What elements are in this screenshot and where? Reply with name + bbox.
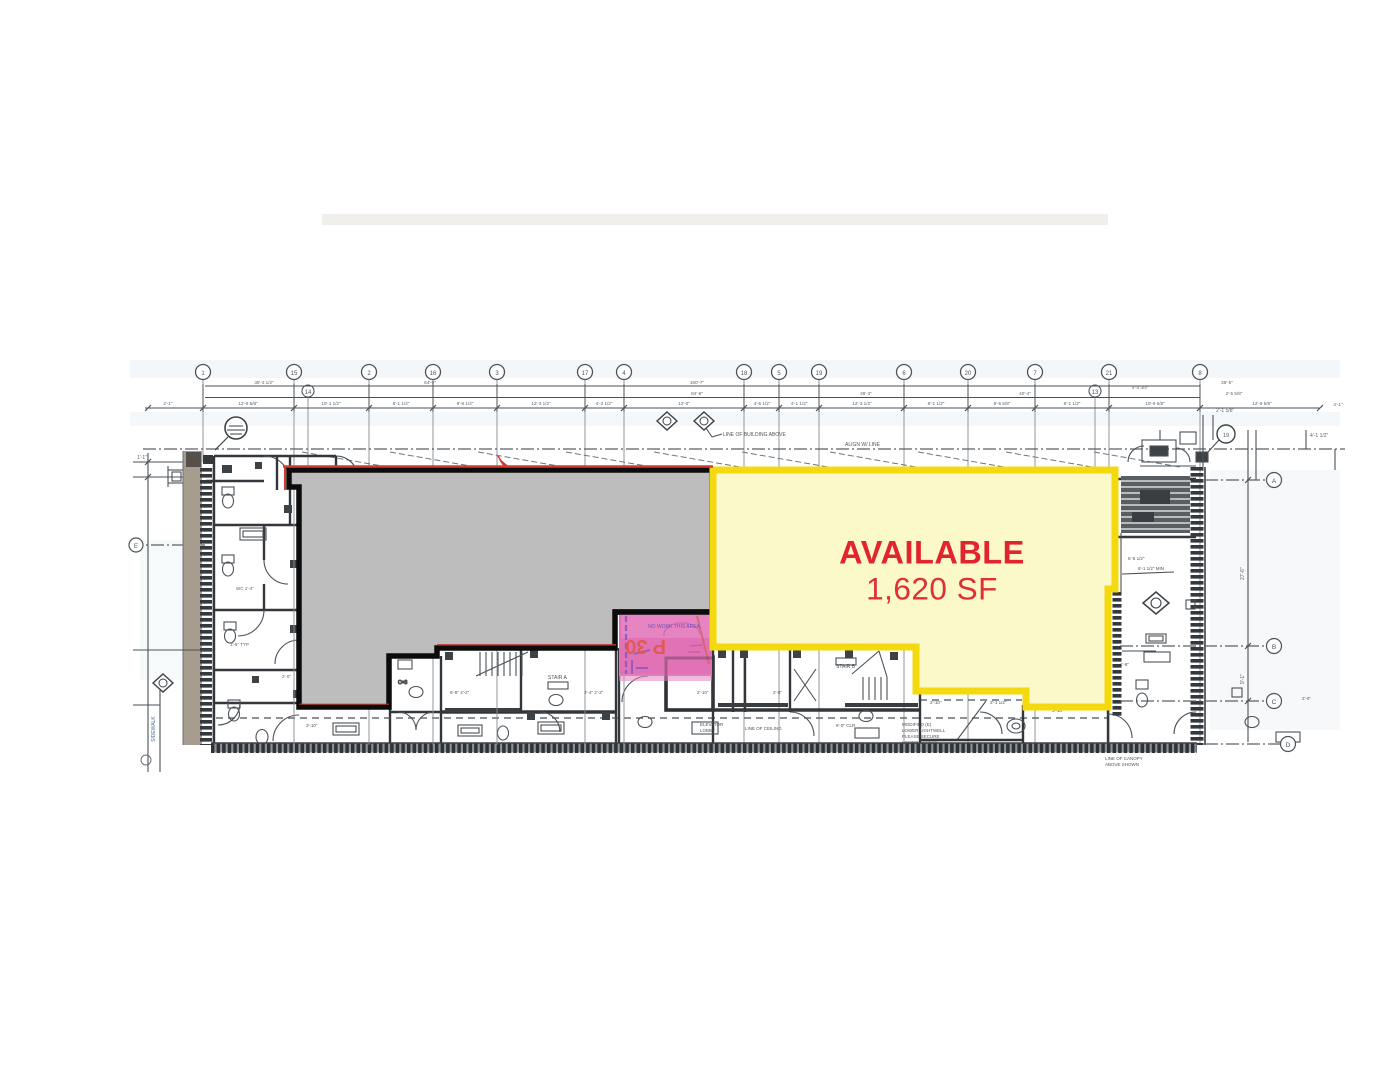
- svg-text:9'-1": 9'-1": [1240, 674, 1246, 684]
- svg-text:B: B: [1272, 644, 1276, 651]
- svg-text:ALIGN W/ LINE: ALIGN W/ LINE: [845, 442, 881, 448]
- svg-text:C=3: C=3: [398, 680, 408, 686]
- svg-text:4'-4 3/4": 4'-4 3/4": [1132, 385, 1149, 390]
- svg-text:5'-5 1/2": 5'-5 1/2": [1128, 556, 1145, 561]
- svg-text:84'-9": 84'-9": [691, 391, 703, 396]
- svg-text:ABOVE SHOWN: ABOVE SHOWN: [1105, 762, 1139, 767]
- svg-text:15: 15: [291, 371, 298, 377]
- svg-text:18: 18: [741, 371, 748, 377]
- svg-text:1'-1": 1'-1": [137, 455, 147, 461]
- svg-text:2'-0": 2'-0": [1302, 696, 1311, 701]
- svg-text:8'-1 1/2": 8'-1 1/2": [393, 401, 410, 406]
- svg-text:20: 20: [965, 371, 972, 377]
- svg-text:4'-1 1/2": 4'-1 1/2": [791, 401, 808, 406]
- svg-text:WC 1'-4": WC 1'-4": [236, 586, 254, 591]
- svg-text:40'-4": 40'-4": [1019, 391, 1031, 396]
- svg-text:NO WORK THIS AREA: NO WORK THIS AREA: [648, 624, 701, 630]
- svg-text:LINE OF CEILING: LINE OF CEILING: [745, 726, 782, 731]
- svg-text:4'-5 1/2": 4'-5 1/2": [754, 401, 771, 406]
- svg-text:27'-6": 27'-6": [1240, 567, 1246, 580]
- svg-text:4'-1 1/2": 4'-1 1/2": [1310, 433, 1329, 439]
- svg-text:17: 17: [582, 371, 589, 377]
- svg-text:AVAILABLE: AVAILABLE: [839, 535, 1025, 571]
- svg-text:12'-3 1/2": 12'-3 1/2": [852, 401, 872, 406]
- svg-text:36'-5": 36'-5": [1221, 380, 1233, 385]
- svg-text:160'-7": 160'-7": [690, 380, 705, 385]
- svg-text:12'-9 5/8": 12'-9 5/8": [1252, 401, 1272, 406]
- svg-text:2'-1": 2'-1": [163, 401, 173, 406]
- svg-text:3'-10": 3'-10": [306, 723, 318, 728]
- svg-text:12'-0": 12'-0": [678, 401, 690, 406]
- svg-text:2'-10": 2'-10": [697, 690, 709, 695]
- svg-text:10'-1 1/2": 10'-1 1/2": [321, 401, 341, 406]
- svg-text:LINE OF BUILDING ABOVE: LINE OF BUILDING ABOVE: [723, 432, 786, 438]
- svg-text:E: E: [134, 544, 138, 550]
- svg-text:ELEVATOR: ELEVATOR: [700, 722, 724, 727]
- svg-text:1'-6" TYP: 1'-6" TYP: [230, 642, 249, 647]
- svg-text:14: 14: [305, 390, 312, 396]
- svg-text:36'-3": 36'-3": [860, 391, 872, 396]
- svg-text:10'-9 5/8": 10'-9 5/8": [1145, 401, 1165, 406]
- svg-text:9'-5 5/8": 9'-5 5/8": [994, 401, 1011, 406]
- svg-text:3'-4" 2'-2": 3'-4" 2'-2": [584, 690, 604, 695]
- svg-text:2'-1 5/8": 2'-1 5/8": [1216, 408, 1235, 414]
- svg-text:STAIR A: STAIR A: [548, 675, 567, 681]
- svg-text:2'-10": 2'-10": [930, 700, 942, 705]
- svg-text:PLEASE SECURE: PLEASE SECURE: [902, 734, 940, 739]
- svg-text:4'-3 1/2": 4'-3 1/2": [596, 401, 613, 406]
- svg-text:D: D: [1286, 742, 1291, 749]
- svg-text:P 30: P 30: [625, 635, 666, 657]
- svg-text:6'-0" CLR: 6'-0" CLR: [836, 723, 856, 728]
- svg-text:19: 19: [816, 371, 823, 377]
- svg-text:6'-1 1/2" MIN: 6'-1 1/2" MIN: [1138, 566, 1164, 571]
- svg-text:SIDEWALK: SIDEWALK: [151, 716, 157, 742]
- svg-text:64'-9": 64'-9": [424, 380, 436, 385]
- svg-text:8'-1 1/2": 8'-1 1/2": [1064, 401, 1081, 406]
- svg-text:2'-5 5/8": 2'-5 5/8": [1226, 391, 1243, 396]
- svg-text:16: 16: [430, 371, 437, 377]
- svg-text:LOWER LIGHTWELL: LOWER LIGHTWELL: [902, 728, 946, 733]
- svg-text:1,620 SF: 1,620 SF: [866, 571, 998, 607]
- svg-text:35'-3 1/2": 35'-3 1/2": [254, 380, 274, 385]
- svg-text:19: 19: [1223, 433, 1229, 439]
- svg-text:4'-1": 4'-1": [1333, 402, 1343, 407]
- svg-text:C: C: [1272, 699, 1277, 706]
- svg-text:2'-0": 2'-0": [282, 674, 291, 679]
- svg-text:MODIFIED (E): MODIFIED (E): [902, 722, 932, 727]
- svg-text:12'-9 5/8": 12'-9 5/8": [238, 401, 258, 406]
- svg-text:3'-1 1/2": 3'-1 1/2": [990, 700, 1007, 705]
- svg-text:9'-8 1/2": 9'-8 1/2": [457, 401, 474, 406]
- svg-text:12'-3 1/2": 12'-3 1/2": [531, 401, 551, 406]
- svg-text:21: 21: [1106, 371, 1113, 377]
- svg-text:LINE OF CANOPY: LINE OF CANOPY: [1105, 756, 1143, 761]
- svg-text:6'-8" 4'-2": 6'-8" 4'-2": [450, 690, 470, 695]
- svg-text:LOBBY: LOBBY: [700, 728, 715, 733]
- svg-text:A: A: [1272, 478, 1277, 485]
- svg-text:8'-1 1/2": 8'-1 1/2": [928, 401, 945, 406]
- svg-text:13: 13: [1092, 390, 1099, 396]
- svg-text:2'-8": 2'-8": [773, 690, 782, 695]
